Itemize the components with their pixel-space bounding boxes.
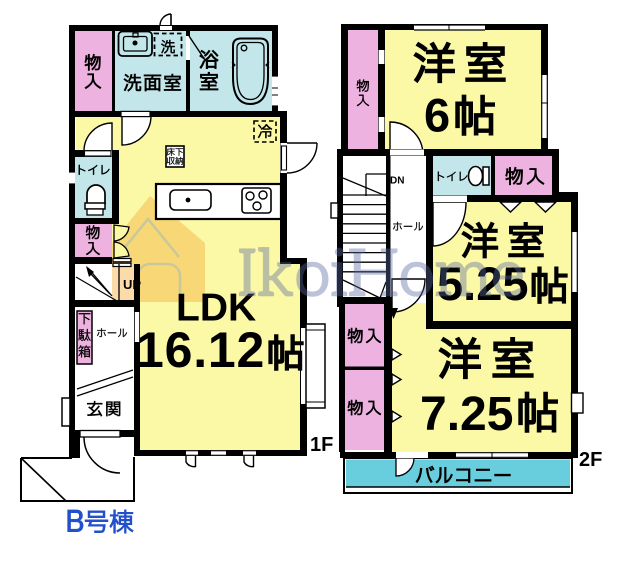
svg-text:UP: UP — [123, 277, 141, 292]
svg-text:2F: 2F — [579, 449, 602, 471]
svg-text:DN: DN — [390, 176, 404, 187]
svg-text:7.25: 7.25 — [420, 388, 513, 441]
svg-text:16.12: 16.12 — [136, 322, 265, 378]
svg-text:6: 6 — [424, 89, 450, 142]
svg-text:1F: 1F — [310, 434, 333, 456]
